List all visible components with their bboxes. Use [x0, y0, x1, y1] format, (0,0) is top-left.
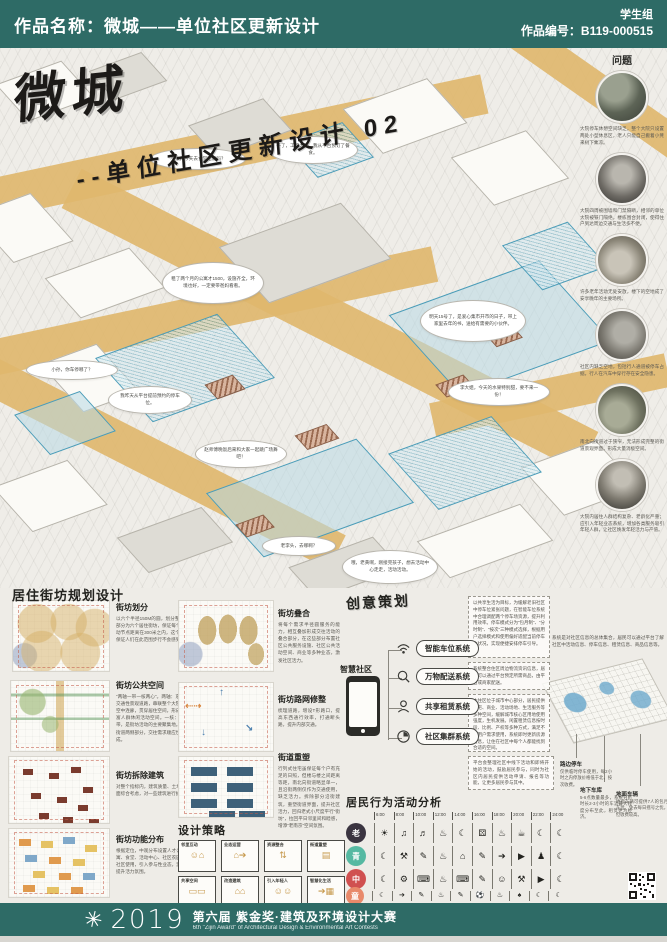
time-tick: 18:00: [492, 812, 512, 820]
function-blocks: [19, 839, 31, 846]
strategy-heading: 设计策略: [178, 822, 226, 838]
activity-icon: ☾: [550, 846, 570, 866]
speech-bubble: 赵师傅晚饭后来和大家一起跳广场舞吧！: [195, 440, 287, 468]
activity-icon: ☾: [452, 823, 472, 843]
strategy-icon: ⌂➔: [224, 848, 256, 862]
wifi-icon: [396, 641, 411, 656]
activity-icon: ⚙: [394, 869, 414, 889]
smart-community-label: 智慧社区: [340, 664, 372, 675]
time-tick: 20:00: [511, 812, 531, 820]
activity-icon: ▶: [511, 846, 531, 866]
time-tick: 8:00: [394, 812, 414, 820]
work-code: 作品编号：B119-000515: [521, 23, 653, 39]
leader-line: [640, 734, 641, 786]
problem-photo: [596, 153, 648, 205]
problem-caption: 南北向街道过于狭窄，无法形成完整的街道景观界面，形成大量消极空间。: [580, 439, 664, 453]
avatar-adult: 中: [346, 869, 366, 889]
system-note: 本住区位于城市中心部分，居民提供住宅、商业、活动场地、生活服务等多种空间，缓解城…: [468, 694, 550, 752]
activity-icon: ☾: [550, 823, 570, 843]
zijin-logo-icon: ✳: [82, 907, 105, 932]
problem-item: 大院四周被围墙和门禁隔断，相邻的单位大院被铁门隔绝，楼栋围合封闭，使得住户到达周…: [580, 153, 664, 229]
arrow-icon: ⇠⇢: [185, 701, 202, 712]
poster-title-calligraphy: 微城: [13, 46, 131, 134]
problem-caption: 大院停车休憩空间缺乏，整个大院只设置两处小型休息区，老人只能自己搬着小凳来树下乘…: [580, 126, 664, 147]
plan-thumb-demolish: [8, 756, 110, 824]
problems-heading: 问题: [580, 52, 664, 67]
problem-item: 社区内缺乏空地，包括行人通道被停车占据，行人在汽车中穿行存在安全隐患。: [580, 309, 664, 378]
speech-bubble: 租了两个月的公寓才1500，设施齐全，环境也好，一定要带爸妈看看。: [162, 262, 264, 304]
demolish-marks: [23, 769, 33, 775]
behavior-row-child: 童 ☾ ➔ ✎ ♨ ✎ ⚽ ♨ ♠ ☾ ☾: [346, 891, 570, 901]
activity-icon: ♨: [431, 891, 451, 901]
activity-icon: ♨: [433, 823, 453, 843]
system-pill: 智能车位系统: [416, 640, 479, 657]
system-pill: 共享租赁系统: [416, 698, 479, 715]
activity-icon: ✎: [411, 891, 431, 901]
activity-icon: ⌨: [413, 869, 433, 889]
problem-photo: [596, 309, 648, 361]
activity-icon: ☾: [550, 869, 570, 889]
parking-label: 路边停车 仅供临时停车使用，每2小时之内停放价格低于北，按次收费。: [560, 760, 612, 788]
system-note: 系统整合住区周边物流资讯信息，居民可以通过平台预定所需商品，由平台或商家配送。: [468, 662, 550, 690]
building-block: [451, 130, 569, 205]
section-title: 街坊路网修整: [278, 694, 340, 705]
activity-icon: ☕: [511, 823, 531, 843]
connector-line: [388, 650, 389, 740]
parking-label: 地面车辆 地面车辆可提供7人的包月车位，免去每日摇号之忧，但收费较高。: [616, 790, 667, 818]
behavior-heading: 居民行为活动分析: [346, 794, 442, 810]
problem-item: 大院内居住人群结构复杂、老龄化严重；应引入年轻业态系统，增加各类服务吸引年轻人群…: [580, 459, 664, 535]
behavior-time-axis: 6:00 8:00 10:00 12:00 14:00 16:00 18:00 …: [374, 812, 570, 820]
time-tick: 12:00: [433, 812, 453, 820]
strategy-icon: ➔▦: [310, 884, 342, 898]
activity-icon: ⚒: [394, 846, 414, 866]
page-bleed-strip: [0, 936, 667, 942]
time-tick: 10:00: [413, 812, 433, 820]
section-text: 将每个需求半径圆服务的能力，相互叠加形成交往活动的叠合部分，在这些部分布置社区公…: [278, 621, 340, 664]
activity-icon: ☾: [372, 891, 392, 901]
building-block: [0, 460, 108, 532]
section-title: 街道重塑: [278, 752, 340, 763]
activity-icon: ☾: [374, 869, 394, 889]
strategy-icon: ⌂⌂: [224, 884, 256, 898]
strategy-icon: ☺⌂: [181, 848, 213, 862]
activity-icon: ♟: [531, 846, 551, 866]
section-text: 行列式住宅虽保证每个户有充足的日照，但楼与楼之间距离等距，南北向街道略显单一，且…: [278, 765, 340, 829]
strategy-box: 业态运营 ⌂➔: [221, 840, 259, 872]
activity-icon: ▶: [531, 869, 551, 889]
time-tick: 14:00: [452, 812, 472, 820]
parking-text: 地面车辆可提供7人的包月车位，免去每日摇号之忧，但收费较高。: [616, 799, 667, 818]
activity-icon: ☀: [374, 823, 394, 843]
phone-home-button: [361, 729, 365, 733]
activity-icon: ☾: [548, 891, 568, 901]
planning-heading: 居住街坊规划设计: [12, 585, 124, 604]
activity-icon: ☾: [374, 846, 394, 866]
time-tick: 24:00: [550, 812, 570, 820]
avatar-youth: 青: [346, 846, 366, 866]
strategy-icon: ▭▭: [181, 884, 213, 898]
poster: 作品名称：微城——单位社区更新设计 学生组 作品编号：B119-000515: [0, 0, 667, 942]
system-pill: 社区集群系统: [416, 728, 479, 745]
section-title: 街坊叠合: [278, 608, 340, 619]
problem-photo: [596, 459, 648, 511]
speech-bubble: 明天15号了，是爱心集市开市的日子，带上家里去年的书，送给有需要的小伙伴。: [420, 300, 526, 342]
plan-thumb-network: ⇠⇢ ↑ ↓ ↘: [178, 682, 274, 752]
activity-icon: ⚽: [470, 891, 490, 901]
person-icon: [396, 699, 411, 714]
problem-caption: 大院内居住人群结构复杂、老龄化严重；应引入年轻业态系统，增加各类服务吸引年轻人群…: [580, 514, 664, 535]
system-note: 以共享生活为目标，为缓解老旧社区中停车位紧张问题，在智能车位系统中合理调配两个停…: [468, 596, 550, 658]
activity-icon: ✎: [413, 846, 433, 866]
strategy-box: 街道重塑 ▤: [307, 840, 345, 872]
speech-bubble: 小孙，你车停哪了？: [26, 360, 118, 380]
speech-bubble: 老李头，去哪啊？: [262, 536, 336, 556]
activity-icon: ♬: [413, 823, 433, 843]
strategy-icon: ⇅: [267, 848, 299, 862]
parking-title: 路边停车: [560, 760, 612, 768]
work-title: 作品名称：微城——单位社区更新设计: [14, 12, 320, 37]
footer-bar: ✳ 2019 第六届 紫金奖·建筑及环境设计大赛 6th "Zijin Awar…: [0, 903, 667, 936]
strategy-icon: ▤: [310, 848, 342, 862]
problem-caption: 社区内缺乏空地，包括行人通道被停车占据，行人在汽车中穿行存在安全隐患。: [580, 364, 664, 378]
activity-icon: ➔: [392, 891, 412, 901]
plan-thumb-overlap: [178, 600, 274, 672]
speech-bubble: 哦，老黄啊，刚接完孩子，想去活动中心走走，活动活动。: [342, 550, 438, 584]
activity-icon: ➔: [492, 846, 512, 866]
problems-column: 问题 大院停车休憩空间缺乏，整个大院只设置两处小型休息区，老人只能自己搬着小凳来…: [580, 52, 664, 540]
time-tick: 22:00: [531, 812, 551, 820]
behavior-row-adult: 中 ☾ ⚙ ⌨ ♨ ⌨ ✎ ☺ ⚒ ▶ ☾: [346, 868, 570, 890]
problem-photo: [596, 71, 648, 123]
activity-icon: ♠: [509, 891, 529, 901]
qr-code: [628, 872, 656, 900]
problem-caption: 大院四周被围墙和门禁隔断，相邻的单位大院被铁门隔绝，楼栋围合封闭，使得住户到达周…: [580, 208, 664, 229]
header-bar: 作品名称：微城——单位社区更新设计 学生组 作品编号：B119-000515: [0, 0, 667, 48]
behavior-row-elderly: 老 ☀ ♫ ♬ ♨ ☾ ⚄ ♨ ☕ ☾ ☾: [346, 822, 570, 844]
system-note: 平台会整理社区中线下活动和即将开始的活动，鼓励居民参与，同时为社区内居民提供活动…: [468, 756, 554, 790]
activity-icon: ♨: [433, 869, 453, 889]
plan-thumb-function: [8, 828, 110, 898]
activity-icon: ✎: [472, 846, 492, 866]
problem-item: 大院停车休憩空间缺乏，整个大院只设置两处小型休息区，老人只能自己搬着小凳来树下乘…: [580, 71, 664, 147]
parking-title: 地面车辆: [616, 790, 667, 798]
activity-icon: ✎: [450, 891, 470, 901]
activity-icon: ☺: [492, 869, 512, 889]
figure-ground-blocks: [191, 767, 217, 776]
time-tick: 6:00: [374, 812, 394, 820]
group-label: 学生组: [521, 8, 653, 23]
activity-icon: ⌂: [452, 846, 472, 866]
arrow-icon: ↑: [219, 687, 224, 698]
activity-icon: ☾: [531, 823, 551, 843]
activity-icon: ⌨: [452, 869, 472, 889]
smartphone-icon: [346, 676, 380, 736]
activity-icon: ♨: [490, 891, 510, 901]
plan-thumb-public-space: [10, 680, 110, 752]
arrow-icon: ↘: [245, 723, 253, 734]
arrow-icon: ↓: [201, 727, 206, 738]
time-tick: 16:00: [472, 812, 492, 820]
behavior-row-youth: 青 ☾ ⚒ ✎ ♨ ⌂ ✎ ➔ ▶ ♟ ☾: [346, 845, 570, 867]
footer-year: 2019: [110, 905, 184, 935]
problem-photo: [596, 384, 648, 436]
plan-thumb-divide: [12, 600, 110, 672]
activity-icon: ♫: [394, 823, 414, 843]
activity-icon: ♨: [433, 846, 453, 866]
footer-subtitle: 6th "Zijin Award" of Architectural Desig…: [193, 925, 397, 931]
section-text: 梳理道路，增设T形路口，提高东西通行效率，打通断头路，提升内部交通。: [278, 707, 340, 728]
plan-thumb-street: [178, 756, 274, 818]
strategy-box: 资源整合 ⇅: [264, 840, 302, 872]
activity-icon: ⚄: [472, 823, 492, 843]
activity-icon: ⚒: [511, 869, 531, 889]
activity-icon: ♨: [492, 823, 512, 843]
phone-screen: [349, 682, 377, 727]
footer-title: 第六届 紫金奖·建筑及环境设计大赛: [193, 908, 397, 925]
clock-icon: [396, 729, 411, 744]
problem-item: 许多老年活动无处安放，楼下的空地成了安享晚年的主要场所。: [580, 234, 664, 303]
system-summary: 系统是对社区信息的总体集合，居民可以通过平台了解社区中活动信息、停车信息、租赁信…: [552, 634, 664, 648]
problem-caption: 许多老年活动无处安放，楼下的空地成了安享晚年的主要场所。: [580, 289, 664, 303]
search-icon: [396, 669, 411, 684]
problem-photo: [596, 234, 648, 286]
strategy-box: 邻里互动 ☺⌂: [178, 840, 216, 872]
activity-icon: ✎: [472, 869, 492, 889]
avatar-elderly: 老: [346, 823, 366, 843]
parking-axon-diagram: [542, 658, 667, 743]
speech-bubble: 我昨天从平台提前预约的停车位。: [108, 386, 192, 414]
creative-heading: 创意策划: [346, 590, 411, 613]
leader-line: [576, 734, 577, 758]
poster-title-block: 微城 --单位社区更新设计 02: [14, 52, 406, 166]
system-pill: 万物配送系统: [416, 668, 479, 685]
strategy-icon: ☺☺: [267, 884, 299, 898]
problem-item: 南北向街道过于狭窄，无法形成完整的街道景观界面，形成大量消极空间。: [580, 384, 664, 453]
activity-icon: ☾: [529, 891, 549, 901]
building-block: [117, 507, 233, 573]
speech-bubble: 李大姐，今天的水果特别甜，要不来一份！: [448, 378, 550, 406]
